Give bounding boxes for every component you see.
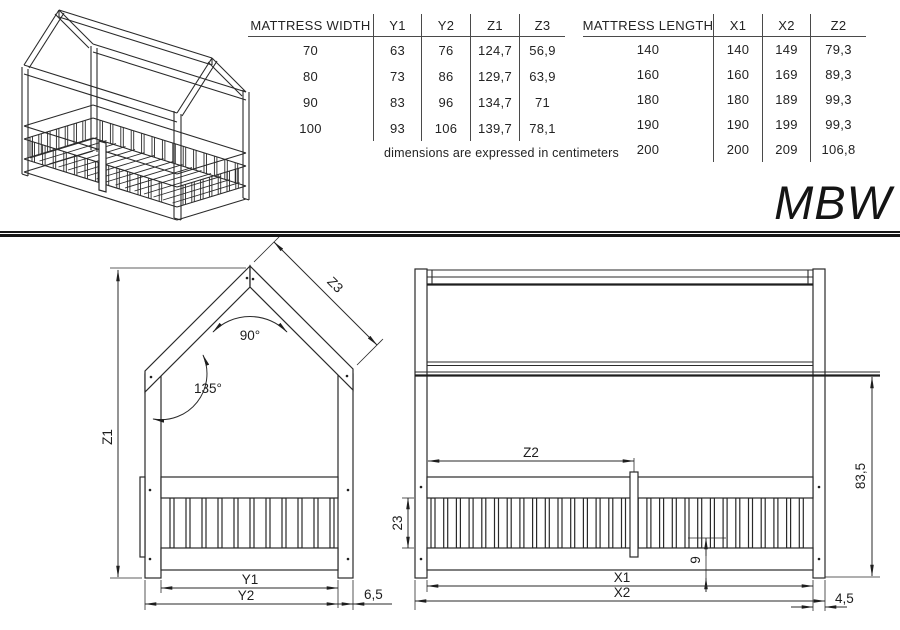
fv-left-post (145, 374, 161, 578)
table-cell: 160 (583, 62, 713, 87)
table-row: 908396134,771 (248, 89, 565, 115)
fv-screw-dots (149, 277, 350, 561)
table-cell: 106,8 (810, 137, 866, 162)
table-header-cell: Z2 (810, 14, 866, 36)
table-header-cell: Z1 (470, 14, 519, 36)
dim-label-x2: X2 (614, 585, 631, 600)
table-cell: 83 (373, 89, 421, 115)
table-cell: 90 (248, 89, 373, 115)
sv-roof-band (415, 270, 880, 376)
sv-bottom-rail (427, 548, 813, 570)
table-header-cell: Y2 (421, 14, 470, 36)
table-cell: 80 (248, 63, 373, 89)
sv-left-post (415, 269, 427, 578)
fv-slats (170, 498, 334, 548)
fv-right-post (338, 374, 353, 578)
dim-label-slat-height: 23 (390, 515, 405, 530)
table-cell: 190 (713, 112, 762, 137)
table-cell: 86 (421, 63, 470, 89)
table-cell: 200 (713, 137, 762, 162)
table-cell: 160 (713, 62, 762, 87)
table-cell: 70 (248, 37, 373, 63)
table-cell: 79,3 (810, 37, 866, 62)
table-header-cell: X2 (762, 14, 810, 36)
table-cell: 209 (762, 137, 810, 162)
dim-label-base: 9 (688, 556, 703, 564)
sv-handle-bar (630, 472, 638, 557)
fv-side-rail-end (140, 477, 145, 557)
table-row: 807386129,763,9 (248, 63, 565, 89)
table-cell: 140 (583, 37, 713, 62)
table-cell: 63 (373, 37, 421, 63)
table-header-cell: MATTRESS WIDTH (248, 14, 373, 36)
title-block-divider-thin (0, 231, 900, 233)
table-cell: 149 (762, 37, 810, 62)
mattress-length-table: MATTRESS LENGTHX1X2Z214014014979,3160160… (583, 14, 866, 162)
dim-label-sv-post-width: 4,5 (835, 591, 854, 606)
sv-top-rail (427, 477, 813, 498)
table-row: 14014014979,3 (583, 37, 866, 62)
dim-label-y2: Y2 (238, 588, 255, 603)
table-cell: 199 (762, 112, 810, 137)
table-cell: 139,7 (470, 115, 519, 141)
dim-label-fv-post-width: 6,5 (364, 587, 383, 602)
table-header-cell: Z3 (519, 14, 565, 36)
dim-label-z2: Z2 (523, 445, 539, 460)
table-header-cell: X1 (713, 14, 762, 36)
table-header-row: MATTRESS WIDTHY1Y2Z1Z3 (248, 14, 565, 37)
dim-label-z1: Z1 (100, 429, 115, 445)
dim-label-x1: X1 (614, 570, 631, 585)
table-row: 200200209106,8 (583, 137, 866, 162)
sv-right-post (813, 269, 825, 578)
table-cell: 63,9 (519, 63, 565, 89)
table-cell: 71 (519, 89, 565, 115)
table-cell: 99,3 (810, 112, 866, 137)
table-cell: 140 (713, 37, 762, 62)
dim-label-y1: Y1 (242, 572, 259, 587)
table-cell: 129,7 (470, 63, 519, 89)
iso-handle-bar (99, 141, 106, 192)
dim-label-apex-angle: 90° (240, 328, 260, 343)
iso-roof (24, 10, 246, 122)
table-cell: 96 (421, 89, 470, 115)
table-cell: 100 (248, 115, 373, 141)
table-cell: 169 (762, 62, 810, 87)
iso-back-slats (100, 120, 238, 183)
model-label: MBW (758, 175, 892, 230)
title-block-divider-thick (0, 234, 900, 237)
table-header-cell: MATTRESS LENGTH (583, 14, 713, 36)
table-cell: 190 (583, 112, 713, 137)
mattress-width-table: MATTRESS WIDTHY1Y2Z1Z3706376124,756,9807… (248, 14, 565, 141)
table-cell: 99,3 (810, 87, 866, 112)
table-cell: 180 (583, 87, 713, 112)
table-cell: 78,1 (519, 115, 565, 141)
drawing-sheet: Z1 Z3 90° 135° Y1 Y2 6,5 (0, 0, 900, 630)
isometric-view (22, 10, 249, 220)
table-cell: 180 (713, 87, 762, 112)
side-view: Z2 23 9 83,5 X1 X2 (390, 269, 880, 611)
table-header-cell: Y1 (373, 14, 421, 36)
table-cell: 89,3 (810, 62, 866, 87)
table-cell: 76 (421, 37, 470, 63)
table-row: 16016016989,3 (583, 62, 866, 87)
table-cell: 93 (373, 115, 421, 141)
table-row: 19019019999,3 (583, 112, 866, 137)
table-cell: 189 (762, 87, 810, 112)
front-view: Z1 Z3 90° 135° Y1 Y2 6,5 (100, 235, 392, 610)
sv-slats (431, 498, 803, 548)
table-row: 706376124,756,9 (248, 37, 565, 63)
table-row: 10093106139,778,1 (248, 115, 565, 141)
fv-top-rail (161, 477, 338, 498)
iso-head-slats (30, 120, 85, 157)
table-cell: 56,9 (519, 37, 565, 63)
iso-rails (24, 105, 246, 220)
dim-label-eave-angle: 135° (194, 381, 222, 396)
units-note: dimensions are expressed in centimeters (384, 146, 619, 160)
table-cell: 73 (373, 63, 421, 89)
dim-label-wall-height: 83,5 (853, 463, 868, 489)
fv-left-roof-beam (145, 266, 250, 392)
table-header-row: MATTRESS LENGTHX1X2Z2 (583, 14, 866, 37)
table-cell: 124,7 (470, 37, 519, 63)
fv-bottom-rail (161, 548, 338, 570)
dim-label-z3: Z3 (324, 274, 346, 296)
table-cell: 134,7 (470, 89, 519, 115)
table-cell: 106 (421, 115, 470, 141)
table-row: 18018018999,3 (583, 87, 866, 112)
